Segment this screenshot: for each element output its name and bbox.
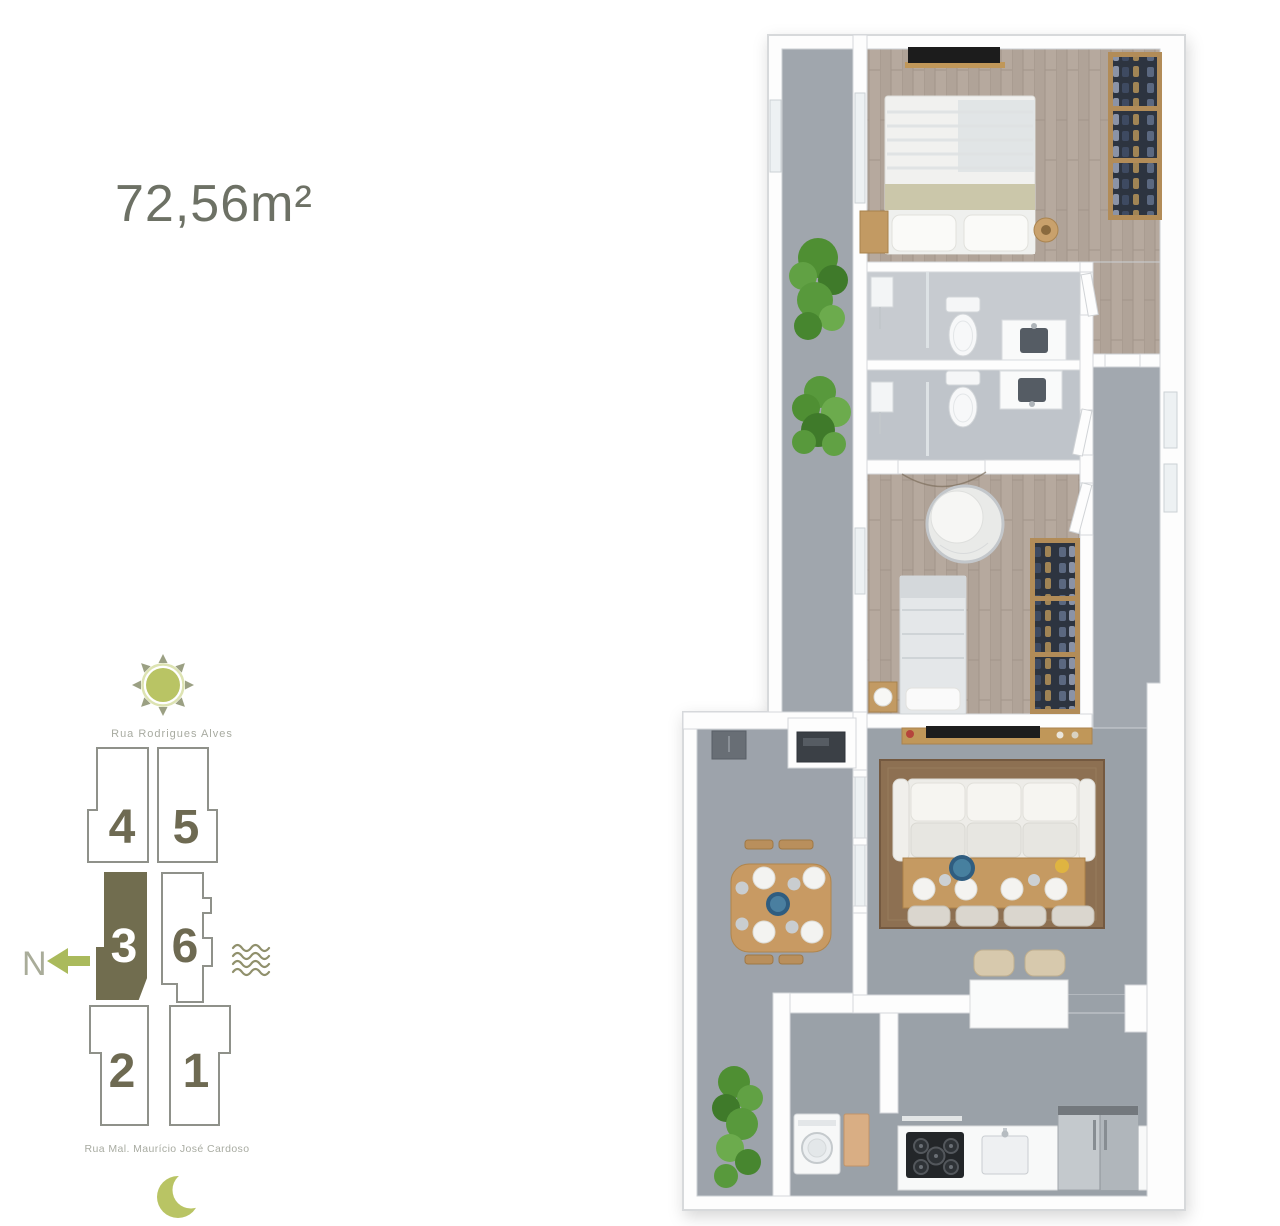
balcony-window: [770, 100, 781, 172]
toilet-icon: [946, 371, 980, 427]
waves-icon: [233, 945, 269, 975]
street-bottom-label: Rua Mal. Maurício José Cardoso: [85, 1143, 250, 1155]
vanity-sink: [1000, 371, 1062, 409]
stool: [974, 950, 1014, 976]
unit-2-label: 2: [109, 1045, 136, 1098]
shower-icon: [871, 382, 893, 412]
tv-icon: [908, 47, 1000, 63]
shower-glass: [926, 272, 929, 348]
unit-1-label: 1: [183, 1045, 210, 1098]
unit-6-label: 6: [172, 920, 199, 973]
lamp-icon: [874, 688, 892, 706]
hallway-window-2: [1164, 464, 1177, 512]
master-suite-passage: [1093, 262, 1160, 354]
site-plan: Rua Rodrigues Alves Rua Mal. Maurício Jo…: [22, 654, 269, 1218]
north-letter: N: [22, 945, 47, 983]
listing-floorplan-page: 72,56m² Rua Rodrigues Alves Rua Mal. Mau…: [0, 0, 1280, 1226]
pillow: [964, 215, 1028, 251]
floorplan-graphic: 72,56m² Rua Rodrigues Alves Rua Mal. Mau…: [0, 0, 1280, 1226]
shower-glass: [926, 382, 929, 456]
master-glass-door: [855, 93, 865, 203]
intercom-panel: [797, 732, 845, 762]
shower-icon: [871, 277, 893, 307]
master-wardrobe: [1108, 52, 1162, 220]
entry-doormat: [712, 731, 746, 759]
master-tv-console: [905, 47, 1005, 68]
unit-3-label: 3: [111, 920, 138, 973]
fridge-icon: [1058, 1106, 1138, 1190]
floor-plan: [683, 35, 1185, 1210]
stool: [1025, 950, 1065, 976]
utensil-rail: [902, 1116, 962, 1121]
tv-icon: [926, 726, 1040, 738]
area-label: 72,56m²: [115, 175, 313, 233]
unit-4-label: 4: [109, 801, 136, 854]
bedside-tray: [1034, 218, 1058, 242]
washer-icon: [794, 1114, 840, 1174]
unit-5-label: 5: [173, 801, 200, 854]
north-arrow-icon: [47, 948, 90, 974]
moon-icon: [157, 1172, 210, 1219]
balcony-table: [731, 864, 831, 952]
single-bed: [900, 576, 966, 714]
papasan-chair: [927, 486, 1003, 562]
bedroom2-glass-door: [855, 528, 865, 594]
toilet-icon: [946, 297, 980, 356]
pillow: [892, 215, 956, 251]
nightstand: [860, 211, 888, 253]
tv-console: [902, 726, 1092, 744]
ironing-board: [844, 1114, 869, 1166]
sofa: [893, 779, 1095, 861]
dining-table: [903, 855, 1085, 908]
pillow: [906, 688, 960, 710]
sun-icon: [132, 654, 194, 716]
hallway: [1093, 367, 1160, 728]
street-top-label: Rua Rodrigues Alves: [111, 728, 233, 740]
kitchen-opening: [1068, 995, 1125, 1013]
cooktop-icon: [906, 1132, 964, 1178]
master-bed: [885, 96, 1035, 254]
wardrobe-2: [1030, 538, 1080, 714]
hallway-window: [1164, 392, 1177, 448]
vanity-sink: [1002, 320, 1066, 360]
